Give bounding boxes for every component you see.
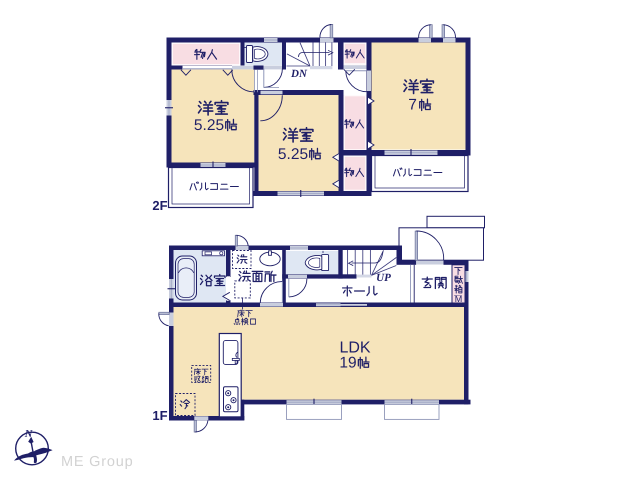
svg-text:ME Group: ME Group [61, 454, 133, 470]
svg-text:5.25: 5.25 [278, 146, 308, 163]
svg-text:5.25: 5.25 [194, 117, 224, 134]
svg-text:7: 7 [408, 96, 417, 113]
svg-text:UP: UP [376, 272, 391, 284]
svg-text:N: N [24, 429, 33, 440]
svg-text:M: M [455, 294, 463, 304]
svg-text:1F: 1F [152, 408, 167, 423]
svg-text:DN: DN [290, 68, 308, 80]
svg-text:2F: 2F [152, 198, 167, 213]
svg-text:19: 19 [339, 354, 356, 371]
